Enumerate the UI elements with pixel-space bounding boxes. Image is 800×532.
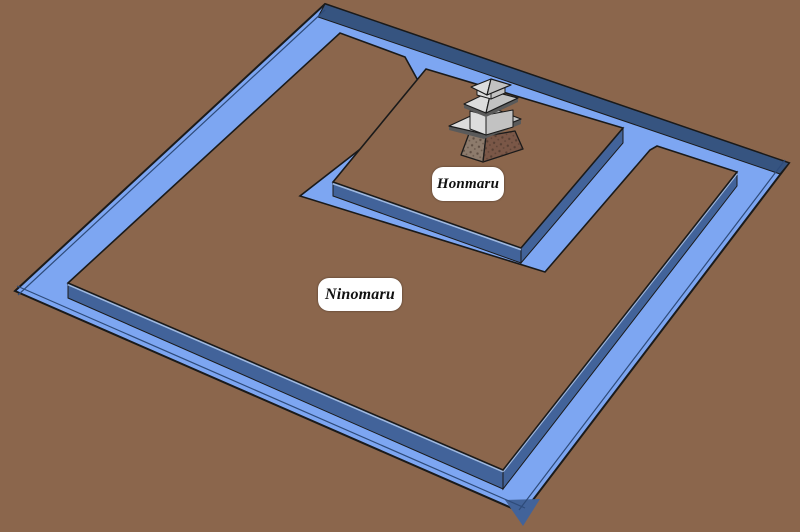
honmaru-label: Honmaru [432,167,504,201]
ninomaru-label: Ninomaru [318,278,402,311]
castle-plan-canvas [0,0,800,532]
castle-plan-diagram: Honmaru Ninomaru [0,0,800,532]
